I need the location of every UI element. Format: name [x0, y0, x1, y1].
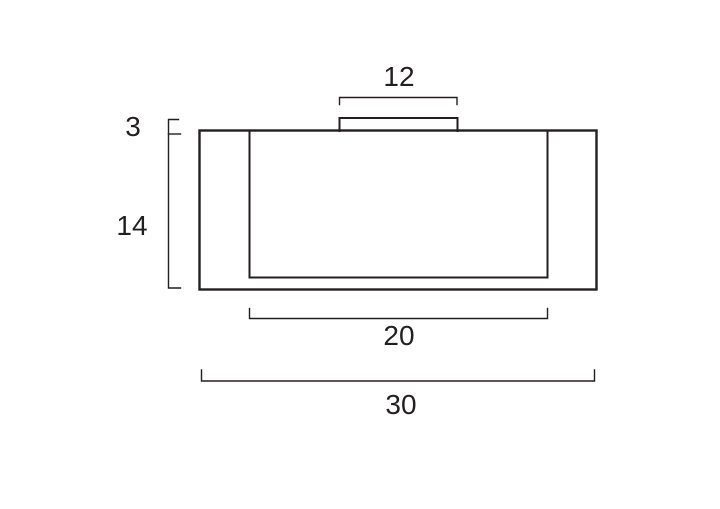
- outer-body-outline: [200, 131, 597, 290]
- dim-label-top-width: 12: [383, 61, 414, 92]
- dim-bracket-left-heights: [169, 120, 181, 289]
- dim-bracket-bottom-inner-width: [250, 309, 548, 319]
- dimension-brackets-group: [169, 98, 595, 382]
- dim-label-left-upper-height: 3: [125, 111, 141, 142]
- dim-label-bottom-inner-width: 20: [383, 320, 414, 351]
- dimension-labels-group: 12 3 14 20 30: [116, 61, 416, 420]
- fixture-outlines-group: [200, 118, 597, 290]
- fixture-dimension-drawing: 12 3 14 20 30: [0, 0, 720, 509]
- dim-bracket-top-width: [340, 98, 458, 105]
- inner-shade-outline: [250, 131, 548, 278]
- dim-label-bottom-overall-width: 30: [385, 389, 416, 420]
- dimension-drawing-canvas: 12 3 14 20 30: [0, 0, 720, 509]
- dim-bracket-bottom-overall-width: [202, 370, 595, 381]
- mounting-canopy-outline: [340, 118, 458, 131]
- dim-label-left-lower-height: 14: [116, 210, 147, 241]
